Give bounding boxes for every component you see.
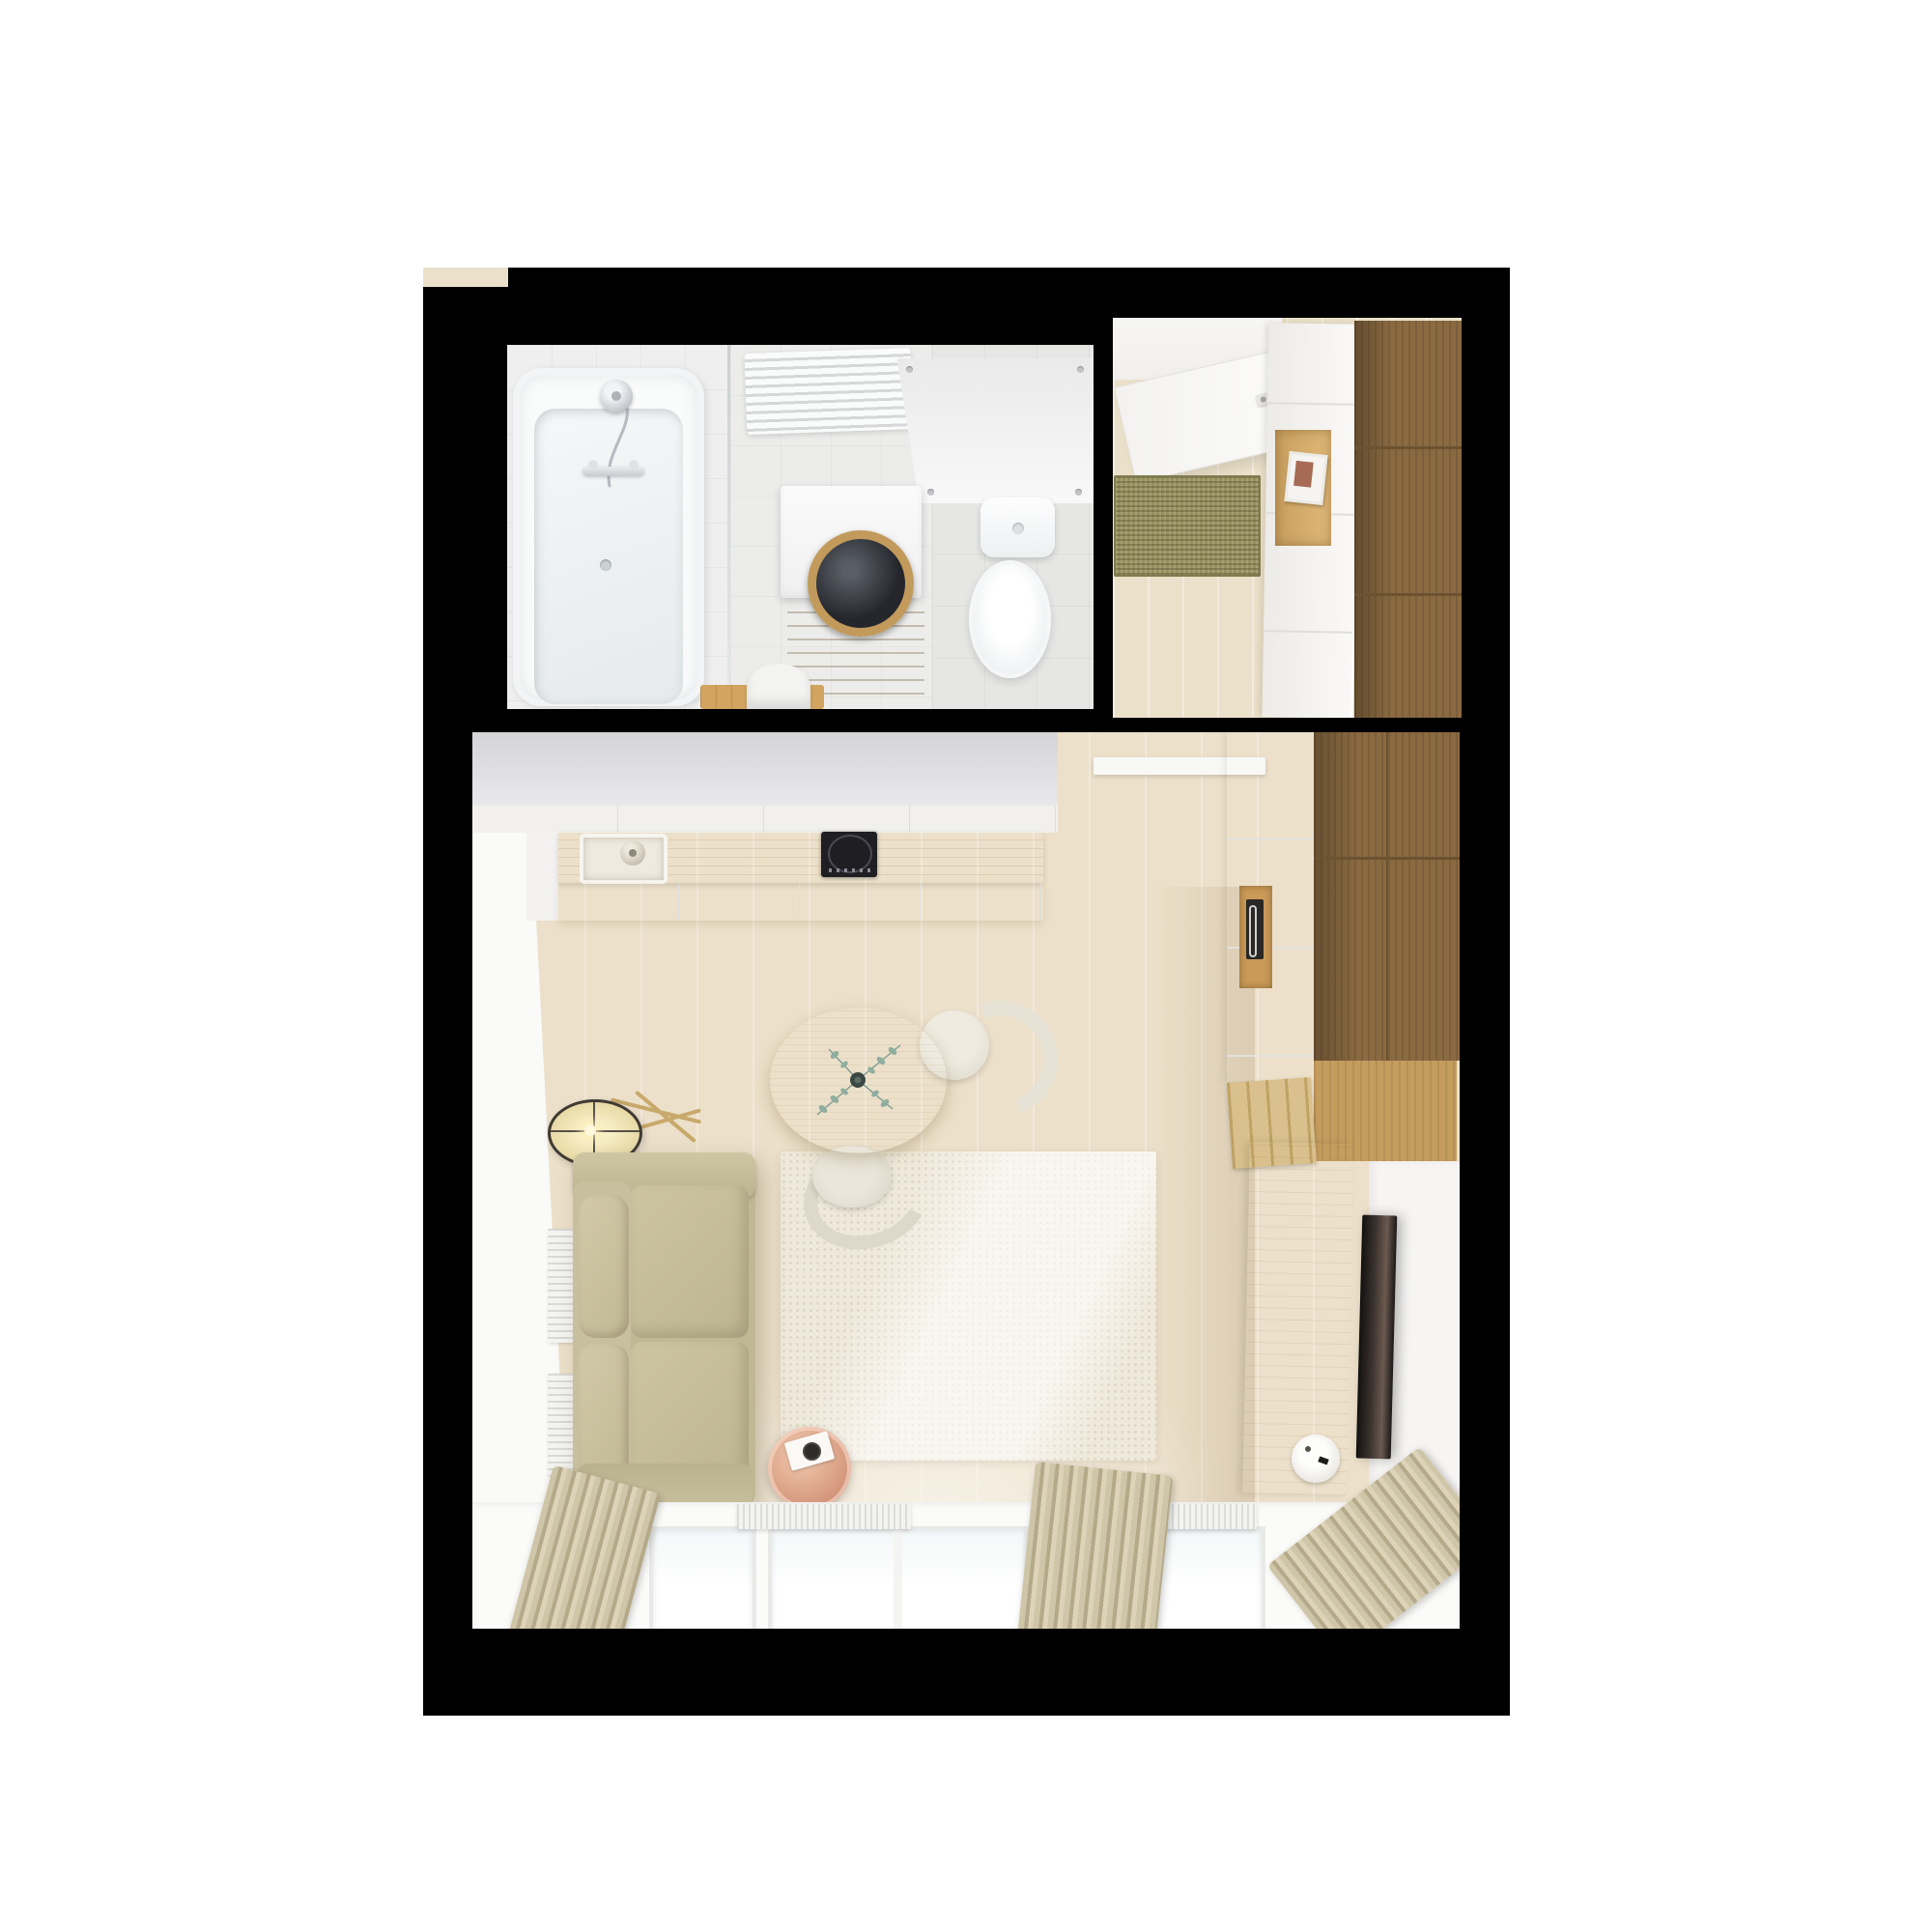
window-pane (768, 1526, 1030, 1629)
sofa-seat-cushion (631, 1185, 749, 1338)
curtain (1017, 1462, 1174, 1629)
stool (747, 664, 810, 709)
toilet-wall-panel (889, 358, 1094, 503)
toilet (969, 560, 1051, 678)
sofa-back-cushion (579, 1195, 629, 1338)
dining-chair (812, 1146, 892, 1207)
apartment-walls (423, 268, 1510, 1716)
tv (1356, 1215, 1398, 1460)
picture-frame (1284, 451, 1327, 505)
shower-head-icon (600, 380, 633, 412)
kitchen-faucet-icon (620, 840, 645, 866)
counter-side-panel (526, 832, 558, 921)
induction-cooktop (821, 832, 877, 877)
open-shelf-niche (1275, 430, 1331, 546)
passage-opening (423, 268, 508, 287)
speaker (1292, 1435, 1340, 1483)
kitchen-sink (580, 834, 668, 884)
shower-glass-screen (727, 345, 730, 709)
hallway-wardrobe (1354, 321, 1462, 718)
cooktop-controls (829, 868, 871, 872)
lamp-glow-icon (584, 1124, 596, 1136)
room-living-kitchen (472, 732, 1460, 1629)
floor-plan-canvas: Top-down 3D render floor plan of a small… (0, 0, 1932, 1932)
toilet-cistern (980, 497, 1055, 557)
kitchen-upper-wall (472, 732, 1058, 806)
doormat (1114, 475, 1261, 577)
faucet-knob (629, 460, 639, 469)
eucalyptus-plant (800, 1024, 916, 1136)
copper-side-table (768, 1427, 851, 1510)
faucet-knob (588, 460, 598, 469)
built-in-oven (1239, 886, 1272, 988)
burner-ring-icon (828, 835, 872, 873)
sofa (573, 1152, 755, 1507)
window-pane (649, 1526, 756, 1629)
radiator (737, 1504, 911, 1529)
kitchen-base-cabinets (558, 884, 1043, 921)
room-bathroom (507, 345, 1094, 709)
cup (803, 1442, 821, 1461)
room-hallway (1113, 318, 1462, 718)
washing-machine-door (808, 530, 914, 637)
towel-radiator (745, 348, 914, 435)
window-pane (1151, 1526, 1265, 1629)
tall-kitchen-unit (1227, 732, 1314, 1082)
wardrobe (1314, 732, 1460, 1061)
kitchen-backsplash-ledge (472, 806, 1058, 833)
bathtub-drain-icon (600, 559, 611, 571)
